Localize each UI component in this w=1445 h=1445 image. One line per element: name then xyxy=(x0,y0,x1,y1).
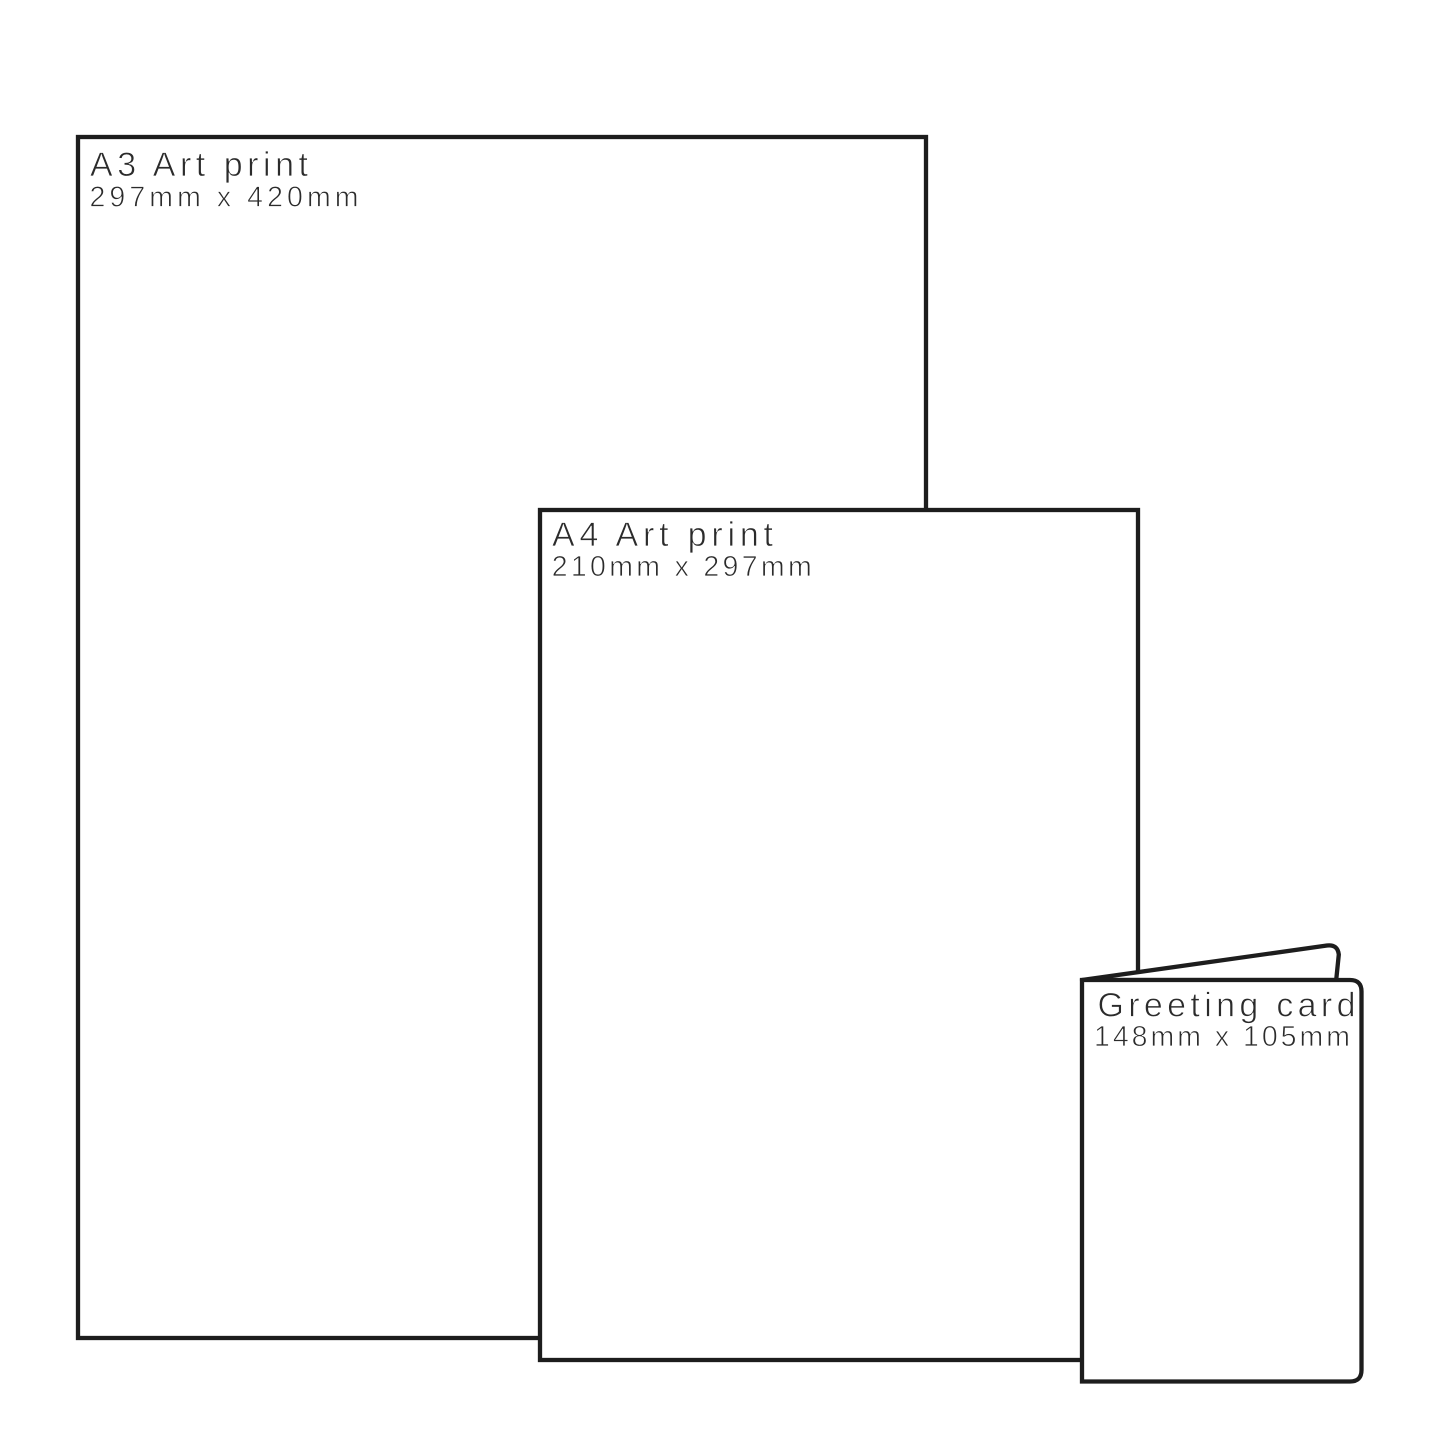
svg-text:A3 Art print: A3 Art print xyxy=(90,146,309,184)
svg-text:148mm x 105mm: 148mm x 105mm xyxy=(1094,1021,1350,1053)
svg-text:A4 Art print: A4 Art print xyxy=(552,516,774,554)
svg-text:210mm x 297mm: 210mm x 297mm xyxy=(552,551,812,583)
svg-text:297mm x 420mm: 297mm x 420mm xyxy=(90,182,359,214)
